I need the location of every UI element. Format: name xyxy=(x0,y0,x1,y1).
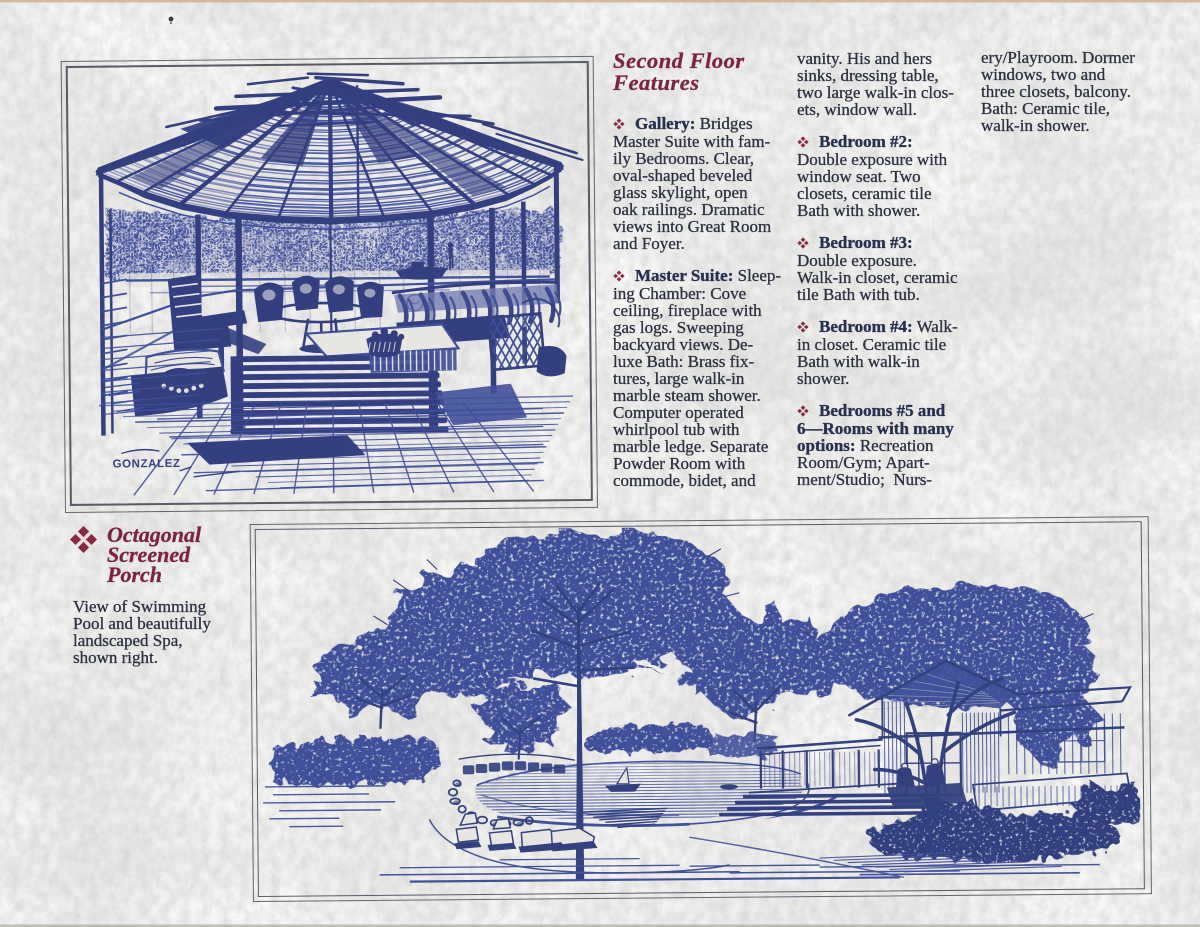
svg-text:GONZALEZ: GONZALEZ xyxy=(112,458,180,471)
svg-text:GONZALES: GONZALES xyxy=(974,854,1030,865)
